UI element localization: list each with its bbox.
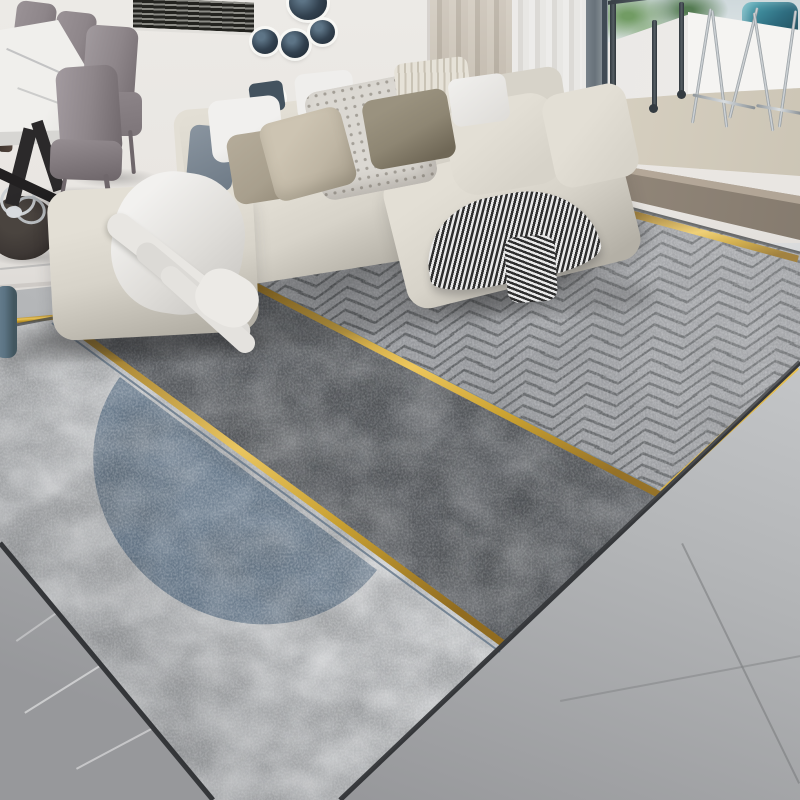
pillow-white-right <box>447 72 511 128</box>
blue-ceramic-stool <box>0 286 17 358</box>
pillow-khaki <box>361 87 458 171</box>
striped-throw-tail <box>504 234 558 303</box>
living-room-photo <box>0 0 800 800</box>
dining-chair-seat <box>49 139 122 181</box>
